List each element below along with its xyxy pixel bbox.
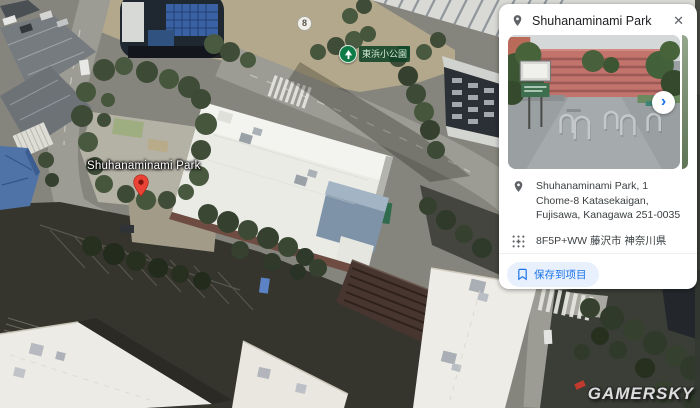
- map-pin[interactable]: [133, 174, 149, 197]
- park-poi[interactable]: 東浜小公園: [339, 45, 410, 63]
- save-button[interactable]: 保存到项目: [507, 262, 599, 287]
- plus-code-icon: [512, 234, 525, 248]
- photo-row: ›: [508, 35, 688, 169]
- address-pin-icon: [512, 179, 525, 193]
- address-row[interactable]: Shuhanaminami Park, 1 Chome-8 Katasekaig…: [512, 179, 684, 223]
- plus-code-row[interactable]: 8F5P+WW 藤沢市 神奈川県: [512, 234, 684, 249]
- next-photo-peek[interactable]: [682, 35, 688, 169]
- place-photo[interactable]: ›: [508, 35, 680, 169]
- card-header: Shuhanaminami Park ✕: [499, 4, 697, 35]
- location-pin-icon: [511, 14, 524, 27]
- next-photo-button[interactable]: ›: [652, 91, 675, 114]
- address-text: Shuhanaminami Park, 1 Chome-8 Katasekaig…: [536, 179, 684, 223]
- plus-code-text: 8F5P+WW 藤沢市 神奈川県: [536, 234, 666, 249]
- place-info-card: Shuhanaminami Park ✕: [499, 4, 697, 289]
- bookmark-icon: [517, 268, 528, 281]
- close-icon[interactable]: ✕: [672, 13, 685, 28]
- place-label: Shuhanaminami Park: [87, 160, 201, 172]
- place-title: Shuhanaminami Park: [532, 14, 664, 28]
- park-poi-label: 東浜小公園: [359, 46, 410, 62]
- watermark: GAMERSKY: [588, 384, 694, 404]
- route-badge: 8: [297, 16, 312, 31]
- tree-icon: [339, 45, 357, 63]
- save-button-label: 保存到项目: [534, 267, 587, 282]
- card-body: Shuhanaminami Park, 1 Chome-8 Katasekaig…: [499, 169, 697, 253]
- card-footer: 保存到项目: [499, 253, 697, 296]
